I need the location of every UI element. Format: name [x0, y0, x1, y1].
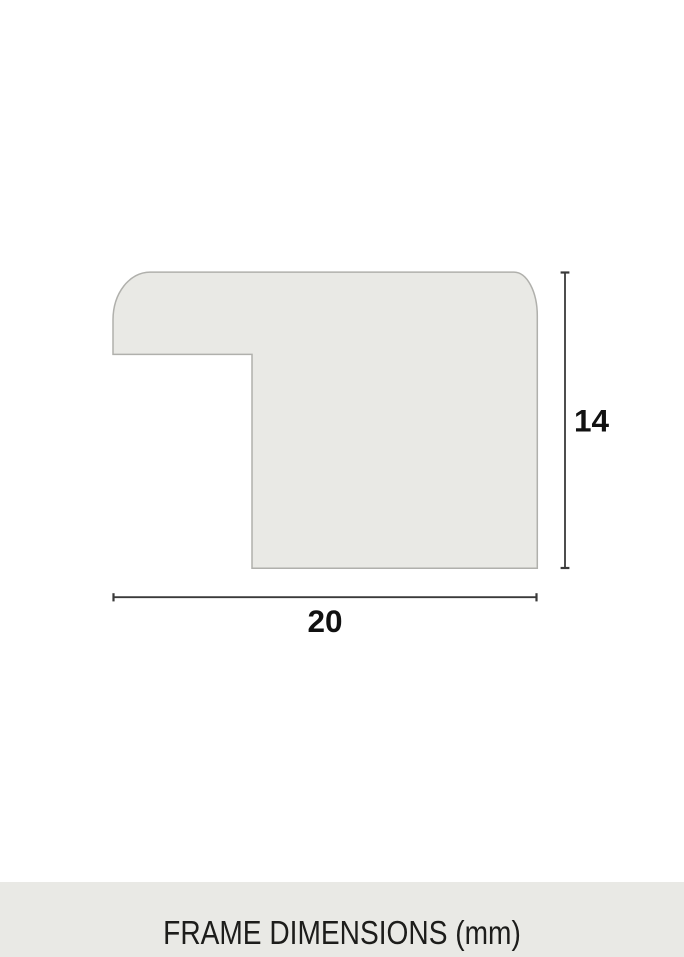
svg-text:20: 20	[307, 603, 342, 639]
svg-text:14: 14	[574, 403, 610, 439]
